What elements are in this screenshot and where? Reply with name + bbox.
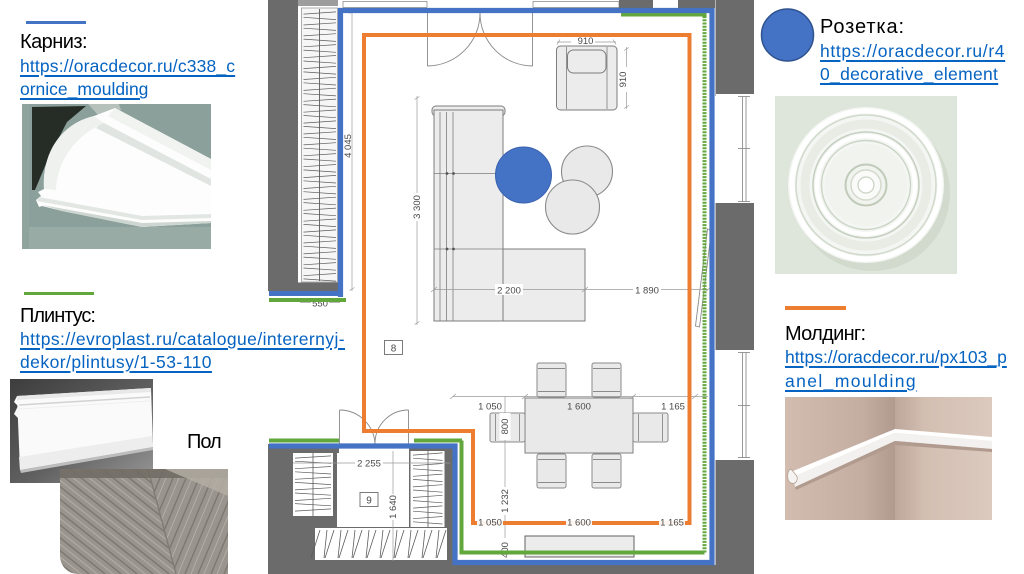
svg-text:1 600: 1 600	[567, 402, 591, 413]
svg-text:2 255: 2 255	[357, 459, 381, 470]
svg-text:1 165: 1 165	[660, 518, 684, 529]
svg-text:8: 8	[391, 344, 397, 355]
svg-text:1 050: 1 050	[478, 518, 502, 529]
svg-text:910: 910	[618, 72, 629, 88]
svg-text:1 165: 1 165	[661, 402, 685, 413]
svg-text:2 200: 2 200	[497, 286, 521, 297]
svg-text:800: 800	[500, 419, 511, 435]
svg-text:400: 400	[500, 542, 511, 558]
svg-text:1 050: 1 050	[478, 402, 502, 413]
svg-text:4 045: 4 045	[343, 134, 354, 158]
svg-text:1 232: 1 232	[500, 489, 511, 513]
svg-text:3 300: 3 300	[412, 195, 423, 219]
svg-text:1 600: 1 600	[567, 518, 591, 529]
svg-text:9: 9	[366, 496, 372, 507]
svg-text:910: 910	[578, 36, 594, 47]
svg-text:1 890: 1 890	[635, 286, 659, 297]
svg-text:1 640: 1 640	[388, 495, 399, 519]
